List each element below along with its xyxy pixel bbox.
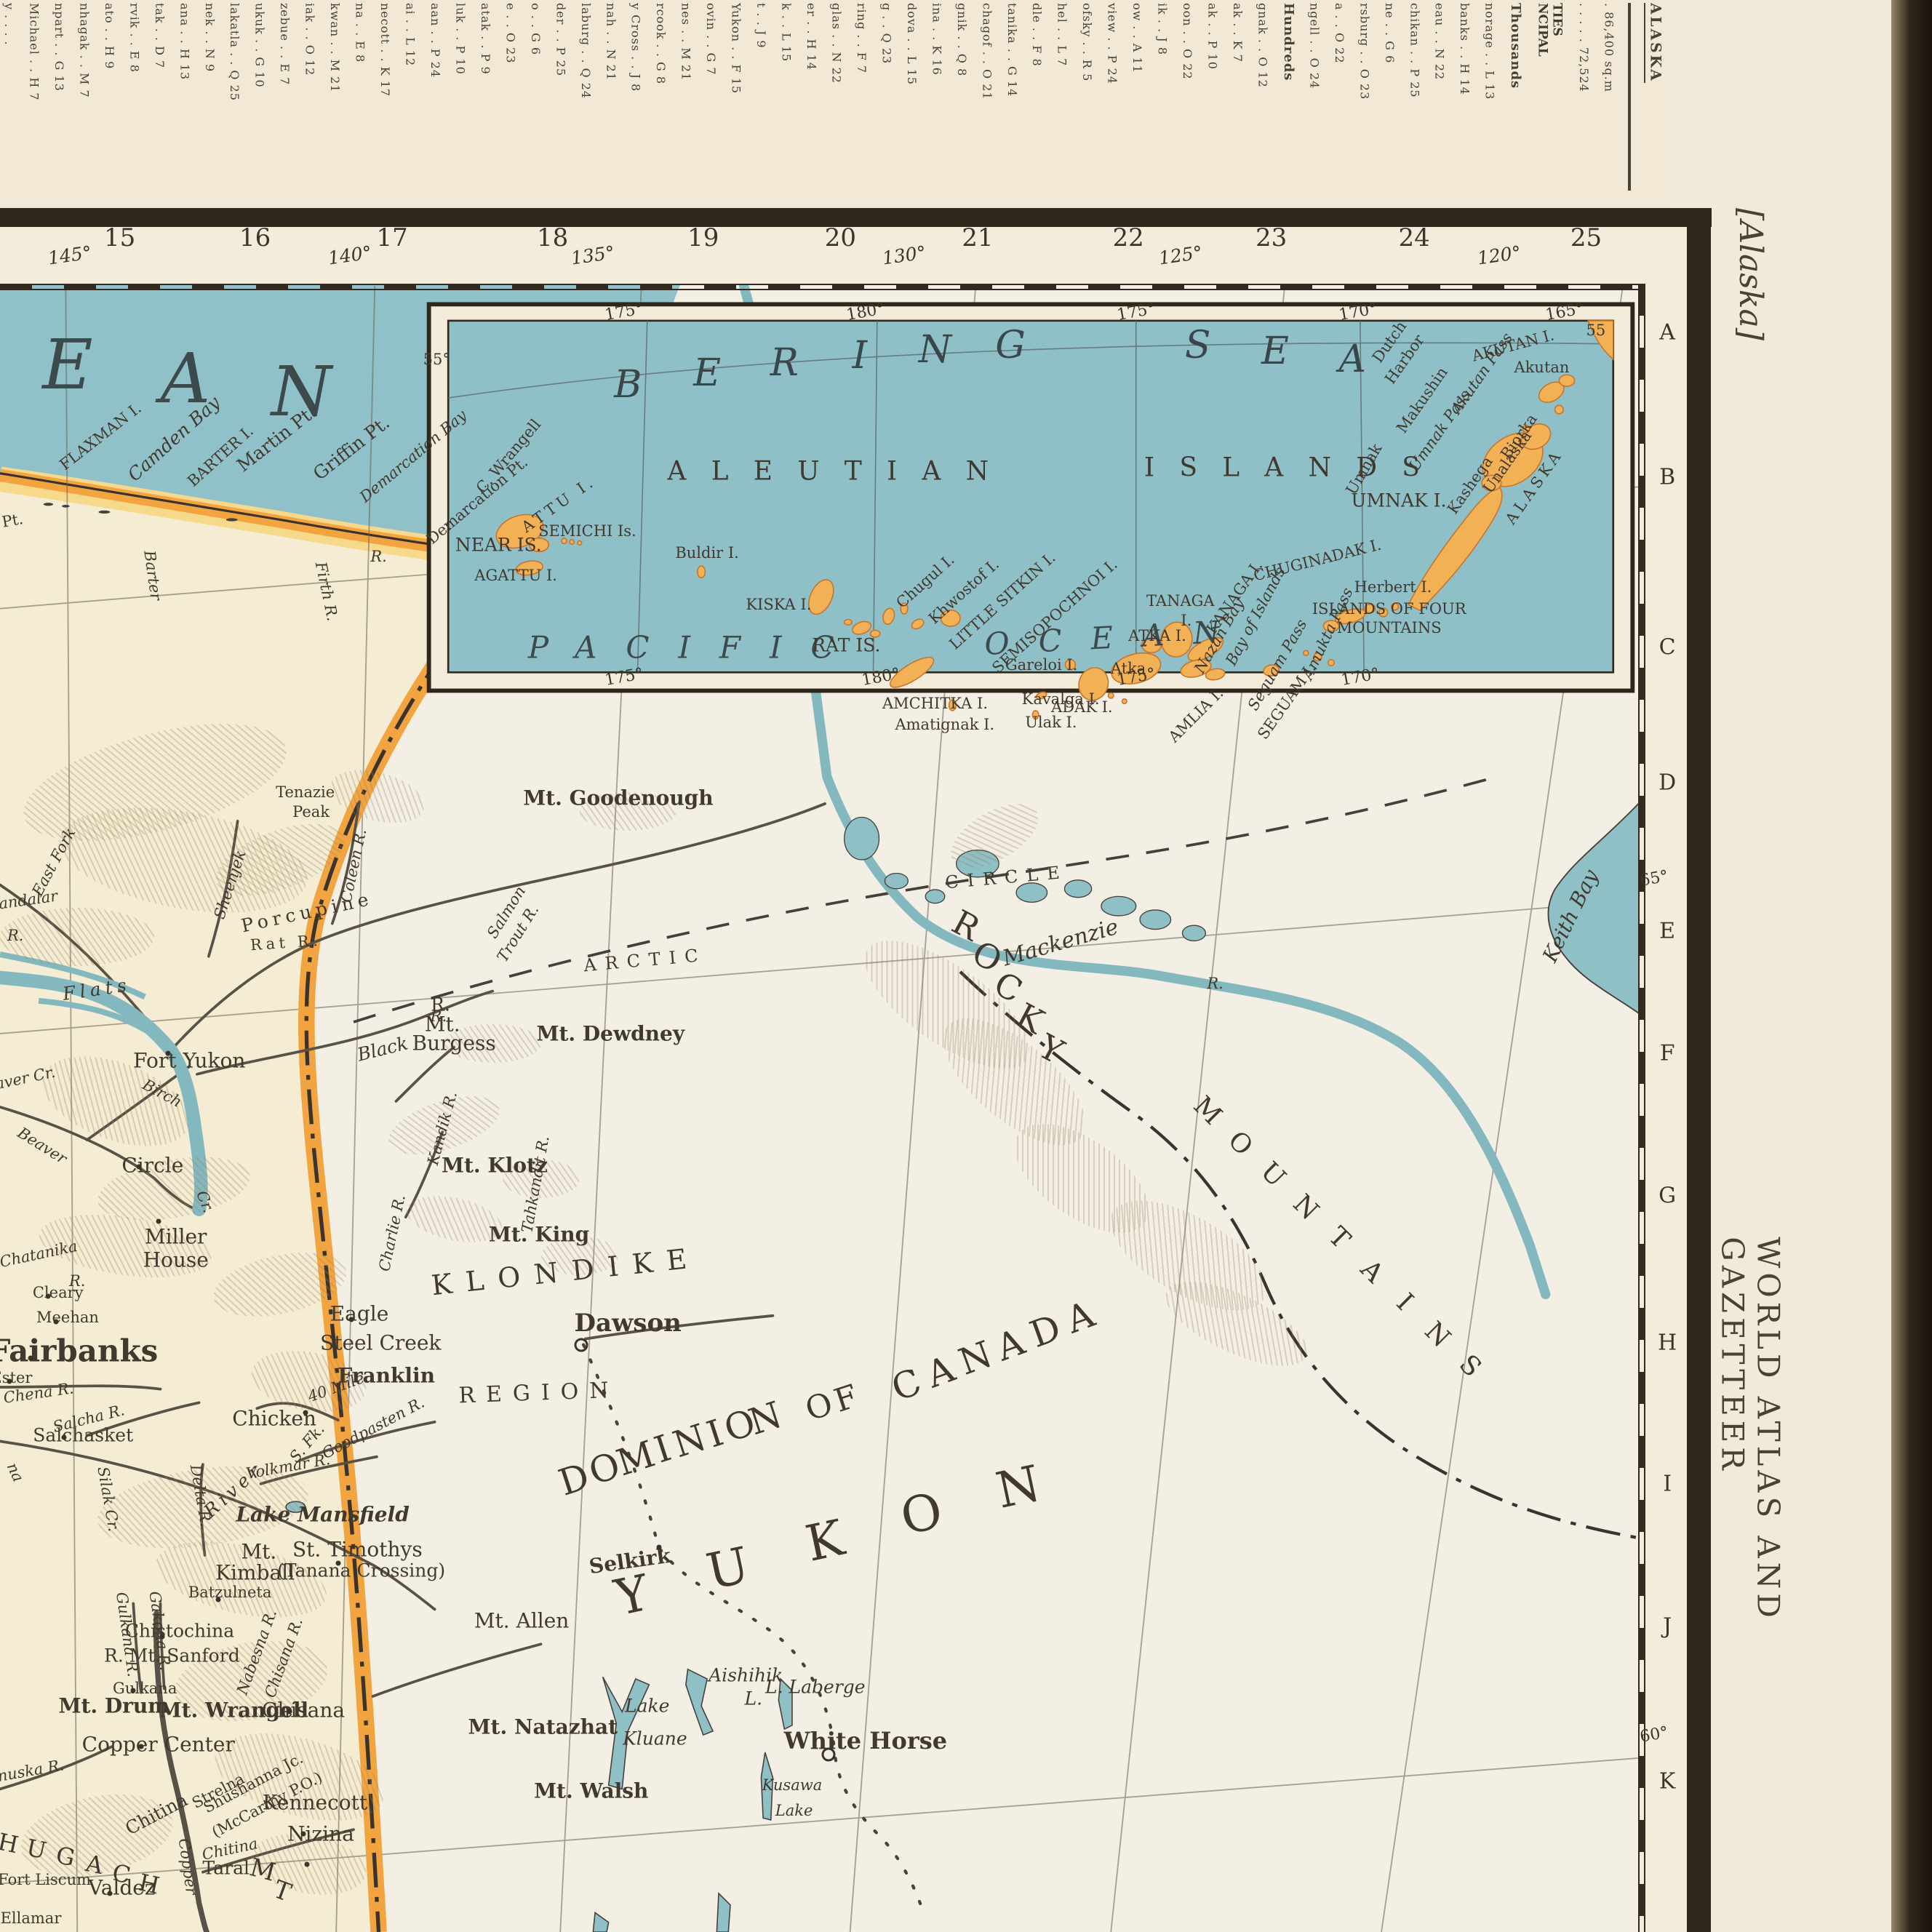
gazetteer-entry: dle . . F 8 <box>1031 3 1042 67</box>
gazetteer-entry: t . . J 9 <box>755 3 767 49</box>
gazetteer-entry: zebue . . E 7 <box>279 3 290 85</box>
map-label: Miller <box>145 1224 207 1248</box>
row-letter: K <box>1659 1768 1675 1794</box>
row-letter: D <box>1658 770 1676 795</box>
map-label: Kusawa <box>762 1776 823 1794</box>
gazetteer-entry: ring . . F 7 <box>855 3 867 73</box>
map-label: Herbert I. <box>1354 578 1432 596</box>
town-dot <box>61 1435 66 1440</box>
gazetteer-entry: atak . . P 9 <box>479 3 491 75</box>
gazetteer-entry: lakatla . . Q 25 <box>228 3 240 101</box>
gazetteer-entry: luk . . P 10 <box>454 3 466 75</box>
map-label: 55° <box>423 351 450 368</box>
town-dot <box>656 1545 661 1550</box>
town-dot <box>156 1218 161 1224</box>
map-label: Nizina <box>287 1821 354 1845</box>
map-label: A <box>1338 338 1366 381</box>
column-number: 20 <box>825 223 856 252</box>
town-dot <box>305 1862 310 1867</box>
gazetteer-entry: ina . . K 16 <box>930 3 942 76</box>
gazetteer-entry: k . . L 15 <box>781 3 792 62</box>
map-label: S <box>1185 324 1211 367</box>
gazetteer-entry: rcook . . G 8 <box>655 3 666 84</box>
map-label: MOUNTAINS <box>1337 619 1442 636</box>
gazetteer-principal-cities-header: NCIPALTIES <box>1536 3 1565 57</box>
gazetteer-title: ALASKA <box>1644 3 1663 83</box>
row-letter: A <box>1659 319 1675 345</box>
map-label: ATKA I. <box>1128 627 1186 644</box>
gazetteer-entry: rvik . . E 8 <box>128 3 140 73</box>
town-dot <box>28 1356 33 1361</box>
gazetteer-entry: view . . P 24 <box>1106 3 1118 84</box>
column-number: 23 <box>1256 223 1287 252</box>
map-label: Lake <box>775 1802 813 1819</box>
town-dot <box>138 1744 143 1749</box>
map-label: Tenazie <box>276 783 335 801</box>
row-letter: H <box>1658 1330 1677 1355</box>
column-number: 19 <box>687 223 719 252</box>
gazetteer-entry: o . . G 6 <box>530 3 541 55</box>
gazetteer-entry: y . . . . <box>3 3 15 46</box>
gazetteer-entry: ana . . H 13 <box>178 3 190 80</box>
map-label: Ulak I. <box>1025 714 1077 731</box>
town-dot <box>7 1379 12 1384</box>
map-label: ISLANDS OF FOUR <box>1312 600 1466 618</box>
gazetteer-entry: rsburg . . O 23 <box>1358 3 1370 100</box>
map-label: Amatignak I. <box>895 716 994 733</box>
row-letter: J <box>1663 1614 1672 1640</box>
atlas-page: y . . . .Michael . . H 7npart . . G 13nh… <box>0 0 1932 1932</box>
gazetteer-entry: banks . . H 14 <box>1458 3 1470 95</box>
map-label: AGATTU I. <box>474 567 557 584</box>
column-number: 24 <box>1399 223 1430 252</box>
gazetteer-entry: gnik . . Q 8 <box>956 3 967 76</box>
city-ring <box>575 1338 588 1352</box>
gazetteer-hundreds-header: Hundreds <box>1282 3 1295 81</box>
map-label: Kluane <box>623 1728 687 1749</box>
map-label: Peak <box>292 803 330 821</box>
town-dot <box>137 1165 142 1170</box>
map-label: AMCHITKA I. <box>882 695 988 712</box>
map-label: Meehan <box>36 1309 99 1326</box>
gazetteer-entry: nhagak . . M 7 <box>78 3 89 98</box>
gazetteer-entry: chikan . . P 25 <box>1408 3 1420 98</box>
map-label: Akutan <box>1514 359 1570 376</box>
gazetteer-entry: kwan . . M 21 <box>329 3 340 93</box>
town-dot <box>349 1317 354 1322</box>
map-label: Mt. Dewdney <box>536 1021 684 1045</box>
gazetteer-entry: hel . . L 7 <box>1056 3 1068 66</box>
gazetteer-stat: . 86,400 sq.m <box>1603 3 1615 92</box>
column-number: 21 <box>962 223 993 252</box>
map-label: Chisana <box>262 1698 345 1722</box>
gazetteer-entry: g . . Q 23 <box>880 3 892 64</box>
town-dot <box>303 1410 308 1415</box>
map-label: Dawson <box>575 1309 682 1338</box>
map-label: R. <box>7 927 24 944</box>
gazetteer-entry: ukuk . . G 10 <box>254 3 266 88</box>
atlas-side-title: WORLD ATLAS AND GAZETTEER <box>1715 1237 1786 1700</box>
map-label: Fairbanks <box>0 1333 158 1368</box>
row-letter: G <box>1658 1183 1676 1209</box>
map-label: Mt. <box>241 1539 276 1563</box>
map-label: Salchasket <box>33 1425 133 1446</box>
map-label: Mt. King <box>489 1223 589 1247</box>
city-ring <box>822 1747 836 1761</box>
map-label: L. <box>745 1688 763 1709</box>
map-label: Mt. Walsh <box>534 1779 648 1803</box>
map-label: RAT IS. <box>812 635 880 656</box>
gazetteer-entry: necott . . K 17 <box>379 3 391 97</box>
column-number: 22 <box>1112 223 1143 252</box>
gazetteer-entry: ne . . G 6 <box>1384 3 1395 63</box>
gazetteer-entry: chagof . . O 21 <box>981 3 992 100</box>
row-letter: F <box>1660 1040 1675 1066</box>
map-label: E <box>42 325 92 405</box>
map-label: Burgess <box>412 1031 496 1055</box>
gazetteer-entry: ato . . H 9 <box>103 3 115 69</box>
gazetteer-entry: nah . . N 21 <box>604 3 616 81</box>
map-label: ADAK I. <box>1051 698 1113 716</box>
gazetteer-entry: ovin . . G 7 <box>705 3 716 76</box>
map-label: E <box>1261 330 1289 373</box>
gazetteer-stat: . . . . . 72,524 <box>1578 3 1589 92</box>
column-number: 25 <box>1570 223 1602 252</box>
map-label: E <box>693 351 721 395</box>
map-label: R <box>770 341 799 385</box>
town-dot <box>216 1597 221 1602</box>
gazetteer-thousands-header: Thousands <box>1509 3 1522 89</box>
map-label: Copper Center <box>82 1733 235 1757</box>
gazetteer-entry: aan . . P 24 <box>429 3 441 78</box>
gazetteer-entry: npart . . G 13 <box>53 3 65 92</box>
map-label: Ester <box>0 1369 32 1386</box>
town-dot <box>160 1634 165 1639</box>
row-letter: C <box>1659 634 1676 660</box>
gazetteer-entry: gnak . . O 12 <box>1256 3 1268 88</box>
map-label: Aishihik <box>708 1664 783 1685</box>
column-number: 15 <box>104 223 135 252</box>
map-label: R. <box>370 548 387 565</box>
map-label: Cleary <box>33 1284 84 1301</box>
map-label: Circle <box>121 1153 183 1177</box>
map-label: 55 <box>1586 322 1605 339</box>
row-letter: B <box>1659 465 1675 490</box>
map-label: B <box>614 363 642 407</box>
map-label: G <box>995 324 1026 367</box>
map-label: Kennecott <box>263 1791 367 1815</box>
map-label: Mt. Natazhat <box>468 1715 618 1739</box>
map-label: Steel Creek <box>320 1330 441 1354</box>
gazetteer-entry: er . . H 14 <box>805 3 817 71</box>
town-dot <box>166 1050 171 1055</box>
gazetteer-entry: laburg . . Q 24 <box>580 3 591 99</box>
map-label: Lake <box>625 1696 669 1717</box>
gazetteer-entry: norage . . L 13 <box>1484 3 1496 100</box>
gazetteer-entry: na . . E 8 <box>354 3 366 63</box>
town-dot <box>287 1709 292 1715</box>
row-letter: E <box>1659 919 1675 944</box>
gazetteer-entry: nek . . N 9 <box>204 3 215 72</box>
row-letter: I <box>1663 1471 1672 1496</box>
gazetteer-entry: Yukon . . F 15 <box>730 3 742 94</box>
town-dot <box>335 1560 340 1565</box>
gazetteer-entry: ak . . P 10 <box>1207 3 1218 70</box>
map-label: (Tanana Crossing) <box>277 1560 445 1581</box>
page-tag: [Alaska] <box>1732 208 1769 340</box>
map-label: Batzulneta <box>188 1584 272 1601</box>
map-label: TANAGA <box>1146 592 1215 610</box>
map-label: Lake Mansfield <box>236 1503 409 1527</box>
map-label: Taral <box>203 1858 250 1879</box>
gazetteer-entry: a . . O 22 <box>1333 3 1345 64</box>
town-dot <box>54 1319 59 1324</box>
map-label: R. <box>1207 975 1224 992</box>
map-label: Fort Yukon <box>133 1049 245 1073</box>
gazetteer-entry: der . . P 25 <box>554 3 566 76</box>
map-label: Chistochina <box>125 1620 234 1641</box>
gazetteer-entry: ik . . J 8 <box>1157 3 1168 55</box>
gazetteer-entry: ai . . L 12 <box>404 3 416 66</box>
map-label: Mt. Klotz <box>442 1153 548 1177</box>
town-dot <box>131 1688 136 1693</box>
map-label: White Horse <box>784 1727 947 1755</box>
town-dot <box>300 1831 306 1836</box>
column-number: 17 <box>377 223 408 252</box>
gazetteer-entry: dova . . L 15 <box>906 3 917 85</box>
gazetteer-entry: ofsky . . R 5 <box>1081 3 1093 81</box>
map-label: SEMICHI Is. <box>538 522 636 540</box>
gazetteer-entry: eau . . N 22 <box>1434 3 1445 80</box>
map-label: Fort Liscum <box>0 1871 91 1888</box>
gazetteer-entry: tak . . D 7 <box>153 3 165 68</box>
column-number: 16 <box>239 223 271 252</box>
map-label: NEAR IS. <box>455 534 542 555</box>
gazetteer-rule <box>1628 3 1631 191</box>
map-label: Eagle <box>330 1302 389 1326</box>
town-dot <box>108 1891 113 1896</box>
map-label: KISKA I. <box>746 596 811 613</box>
column-number: 18 <box>537 223 568 252</box>
map-label: UMNAK I. <box>1351 490 1446 511</box>
map-label: Ellamar <box>1 1909 62 1927</box>
gazetteer-entry: nes . . M 21 <box>680 3 692 81</box>
gazetteer-entry: oon . . O 22 <box>1181 3 1193 80</box>
map-label: ALEUTIAN <box>667 457 1013 487</box>
gazetteer-entry: Michael . . H 7 <box>28 3 39 101</box>
gazetteer-entry: y Cross . . J 8 <box>630 3 642 92</box>
gazetteer-entry: ow . . A 11 <box>1131 3 1143 73</box>
town-dot <box>46 1294 51 1299</box>
gazetteer-entry: tanika . . G 14 <box>1006 3 1018 97</box>
map-frame-right <box>1687 208 1711 1932</box>
map-label: Mt. Allen <box>474 1609 569 1633</box>
map-label: Franklin <box>338 1364 435 1388</box>
map-label: I <box>853 334 868 378</box>
gazetteer-entry: e . . O 23 <box>504 3 516 63</box>
map-label: St. Timothys <box>292 1538 423 1562</box>
gazetteer-entry: iak . . O 12 <box>304 3 316 76</box>
map-label: Gareloi I. <box>1005 656 1077 674</box>
gazetteer-entry: ak . . K 7 <box>1232 3 1243 63</box>
gazetteer-entry: ngell . . O 24 <box>1308 3 1320 89</box>
map-label: ISLANDS <box>1144 452 1445 482</box>
graticule-border-top <box>0 284 1640 290</box>
map-label: Kimball <box>215 1560 295 1584</box>
map-label: N <box>919 328 952 372</box>
map-label: Mt. Goodenough <box>523 786 713 810</box>
map-label: Buldir I. <box>675 544 739 562</box>
gazetteer-entry: glas . . N 22 <box>830 3 842 84</box>
graticule-border-right <box>1638 284 1645 1932</box>
gazetteer-index-strip: y . . . .Michael . . H 7npart . . G 13nh… <box>0 0 1671 207</box>
map-label: Mt. Drum <box>58 1694 169 1718</box>
book-edge <box>1891 0 1932 1932</box>
map-label: House <box>143 1248 209 1272</box>
